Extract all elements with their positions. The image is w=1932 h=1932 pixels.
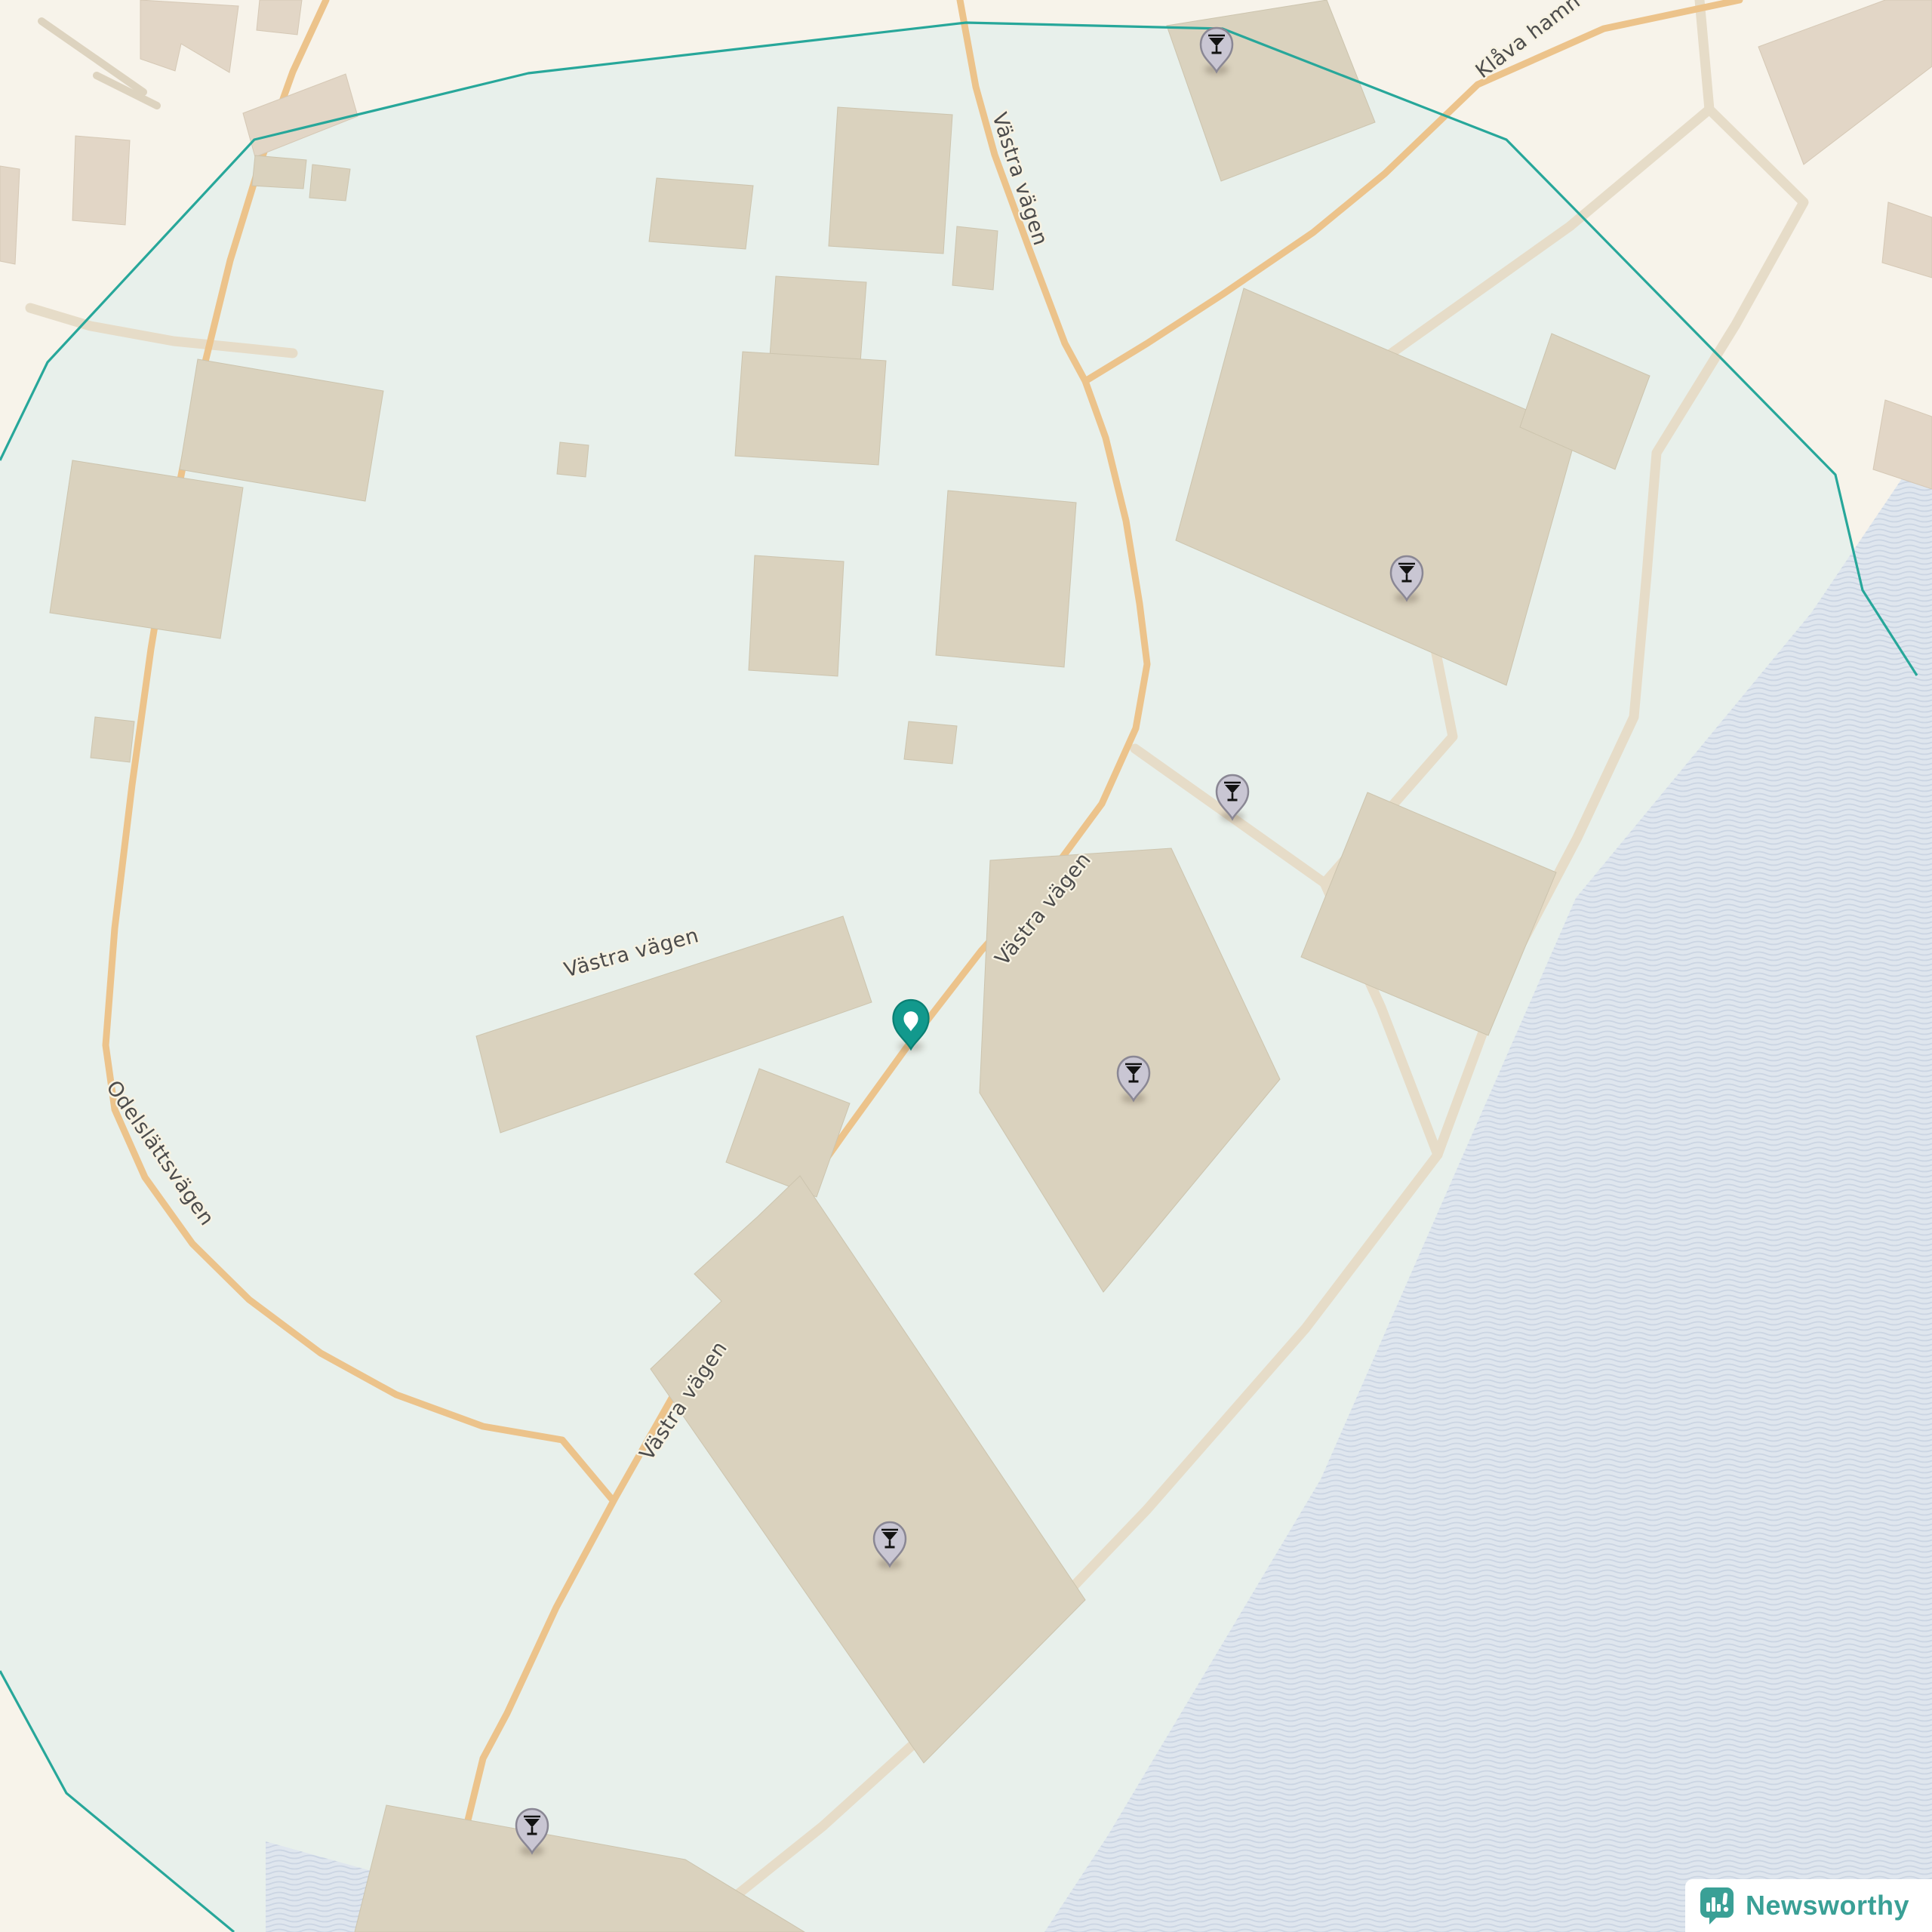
building [252,155,306,189]
attribution-badge[interactable]: Newsworthy [1685,1879,1932,1932]
poi-marker-bar[interactable] [1201,28,1232,75]
building [770,276,866,362]
building [952,226,998,290]
building [91,717,134,762]
building [72,136,130,225]
newsworthy-logo-icon [1699,1886,1735,1925]
map-canvas[interactable]: Västra vägenVästra vägenVästra vägenVäst… [0,0,1932,1932]
building [829,107,952,254]
poi-marker-bar[interactable] [1217,775,1248,822]
building [749,555,844,676]
building [735,352,886,465]
building [904,721,957,764]
poi-marker-bar[interactable] [1118,1057,1149,1103]
building [50,460,243,638]
poi-marker-bar[interactable] [1391,556,1423,603]
building [936,491,1076,667]
building [557,442,589,477]
poi-marker-bar[interactable] [874,1522,906,1569]
building [649,178,753,249]
building [309,165,350,201]
attribution-text: Newsworthy [1746,1890,1909,1921]
building [257,0,302,35]
poi-marker-bar[interactable] [516,1809,548,1856]
